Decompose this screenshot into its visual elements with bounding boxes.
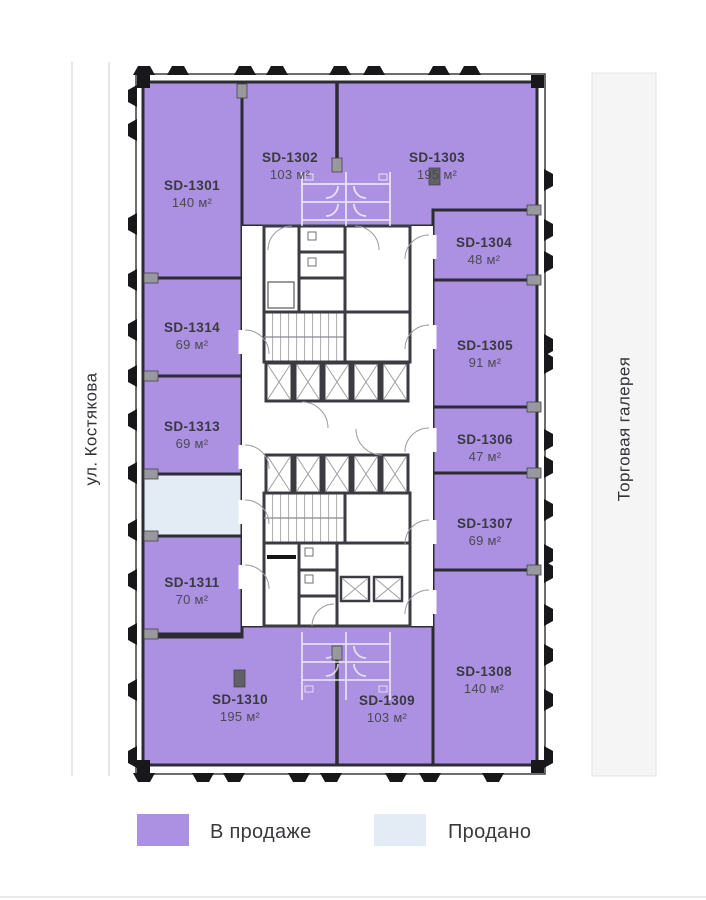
unit-id-SD-1307: SD-1307 [457,516,513,531]
legend-label-available: В продаже [210,821,312,843]
street-label: ул. Костякова [82,372,101,485]
unit-area-SD-1313: 69 м² [176,436,209,451]
gallery-label: Торговая галерея [615,357,634,502]
unit-area-SD-1311: 70 м² [176,592,209,607]
unit-area-SD-1309: 103 м² [367,710,408,725]
unit-id-SD-1308: SD-1308 [456,664,512,679]
unit-sold[interactable] [143,474,242,536]
unit-area-SD-1307: 69 м² [469,533,502,548]
unit-id-SD-1301: SD-1301 [164,178,220,193]
unit-id-SD-1314: SD-1314 [164,320,220,335]
unit-area-SD-1305: 91 м² [469,355,502,370]
legend-swatch-available [137,814,189,846]
unit-id-SD-1302: SD-1302 [262,150,318,165]
unit-area-SD-1306: 47 м² [469,449,502,464]
unit-id-SD-1313: SD-1313 [164,419,220,434]
unit-area-SD-1310: 195 м² [220,709,261,724]
unit-id-SD-1303: SD-1303 [409,150,465,165]
unit-id-SD-1304: SD-1304 [456,235,512,250]
unit-id-SD-1305: SD-1305 [457,338,513,353]
unit-id-SD-1306: SD-1306 [457,432,513,447]
unit-SD-1303[interactable] [339,84,535,208]
unit-area-SD-1302: 103 м² [270,167,311,182]
unit-id-SD-1310: SD-1310 [212,692,268,707]
legend-label-sold: Продано [448,821,531,843]
unit-id-SD-1311: SD-1311 [164,575,219,590]
unit-id-SD-1309: SD-1309 [359,693,415,708]
unit-area-SD-1314: 69 м² [176,337,209,352]
unit-area-SD-1304: 48 м² [468,252,501,267]
elevator-bank-lower [266,455,408,493]
legend: В продаже Продано [137,814,531,846]
elevator-bank-upper [266,363,408,401]
unit-area-SD-1308: 140 м² [464,681,505,696]
floor-plan-page: ул. Костякова Торговая галерея [0,0,706,900]
legend-swatch-sold [374,814,426,846]
floor-plan-canvas: ул. Костякова Торговая галерея [0,0,706,900]
unit-area-SD-1303: 195 м² [417,167,458,182]
unit-area-SD-1301: 140 м² [172,195,213,210]
